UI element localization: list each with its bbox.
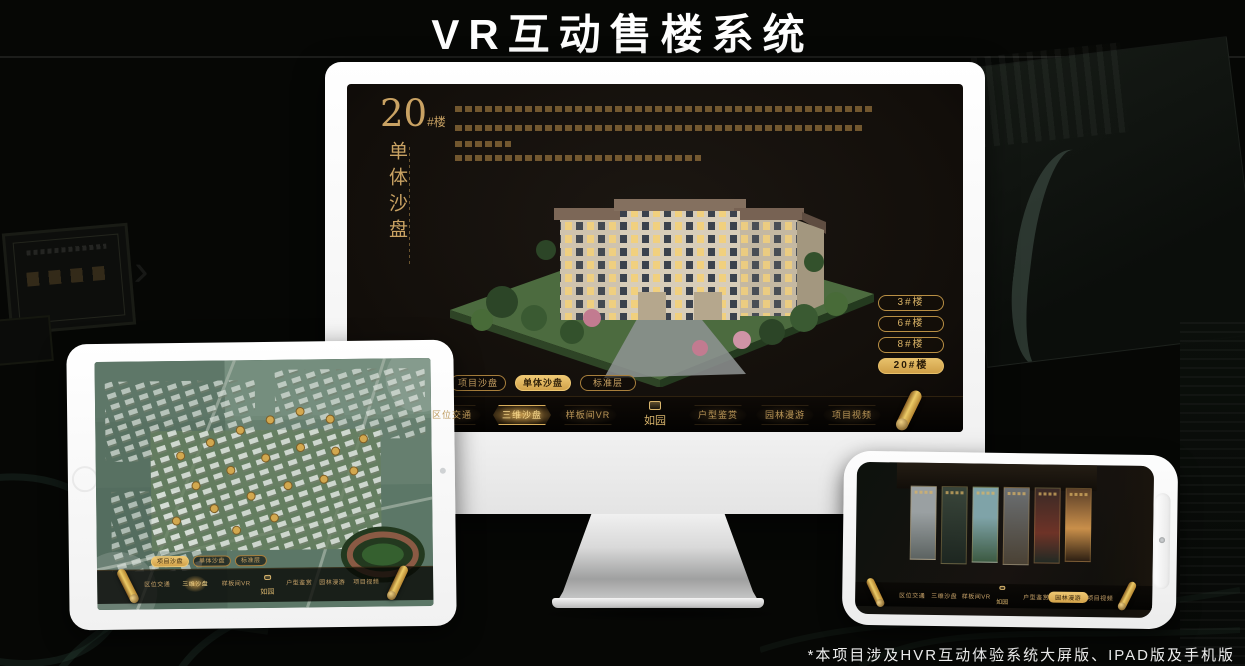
tablet-camera-icon	[440, 468, 446, 474]
seal-icon	[649, 401, 661, 410]
scroll-icon[interactable]	[894, 388, 923, 431]
unit-number: 20	[380, 92, 427, 135]
scene-panel[interactable]	[972, 486, 999, 562]
tablet-device: 项目沙盘 单体沙盘 标准层 区位交通 三维沙盘 样板间VR 如园 户型鉴赏 园林…	[66, 340, 456, 631]
floor-button-20[interactable]: 20#楼	[878, 358, 944, 374]
river-texture	[1003, 144, 1119, 367]
phone-screen: 区位交通 三维沙盘 样板间VR 如园 户型鉴赏 园林漫游 项目视频	[855, 462, 1154, 618]
subtab-standard-floor[interactable]: 标准层	[580, 375, 636, 391]
nav-showroom-vr[interactable]: 样板间VR	[956, 591, 996, 601]
logo-text: 如园	[644, 414, 666, 427]
scroll-icon[interactable]	[865, 577, 885, 608]
unit-suffix: #楼	[427, 115, 446, 129]
ruyuan-logo[interactable]: 如园	[257, 575, 277, 598]
monitor-stand	[557, 514, 759, 602]
floor-button-8[interactable]: 8#楼	[878, 337, 944, 353]
nav-project-video[interactable]: 项目视频	[820, 404, 884, 426]
tablet-camera-ring	[72, 466, 98, 492]
background-plaque-edge	[0, 315, 54, 367]
chevron-right-icon: ›	[133, 246, 150, 297]
subtab-standard-floor[interactable]: 标准层	[235, 555, 267, 566]
promo-poster: { "page": { "title": "VR互动售楼系统", "footno…	[0, 0, 1245, 666]
nav-project-video[interactable]: 项目视频	[344, 576, 388, 586]
unit-title: 20#楼 单体沙盘	[380, 92, 446, 271]
nav-project-video[interactable]: 项目视频	[1080, 593, 1120, 603]
scene-panel[interactable]	[910, 486, 937, 560]
scene-panel[interactable]	[941, 486, 968, 564]
subtab-single-sandbox[interactable]: 单体沙盘	[515, 375, 571, 391]
unit-subtitle-vertical: 单体沙盘	[384, 141, 411, 271]
scene-panel[interactable]	[1034, 487, 1061, 563]
sandbox-subtabs: 项目沙盘 单体沙盘 标准层	[450, 375, 636, 391]
nav-showroom-vr[interactable]: 样板间VR	[556, 404, 620, 426]
subtab-project-sandbox[interactable]: 项目沙盘	[151, 556, 189, 567]
phone-camera-icon	[1159, 537, 1165, 543]
page-title: VR互动售楼系统	[0, 1, 1245, 62]
phone-device: 区位交通 三维沙盘 样板间VR 如园 户型鉴赏 园林漫游 项目视频	[842, 451, 1178, 630]
nav-garden-roam[interactable]: 园林漫游	[753, 404, 817, 426]
logo-text: 如园	[996, 599, 1008, 606]
floor-button-3[interactable]: 3#楼	[878, 295, 944, 311]
seal-icon	[999, 586, 1005, 590]
nav-floorplan-gallery[interactable]: 户型鉴赏	[686, 404, 750, 426]
subtab-project-sandbox[interactable]: 项目沙盘	[450, 375, 506, 391]
scene-panel[interactable]	[1003, 487, 1030, 565]
scene-panel[interactable]	[1065, 488, 1092, 562]
floor-button-6[interactable]: 6#楼	[878, 316, 944, 332]
subtab-single-sandbox[interactable]: 单体沙盘	[193, 555, 231, 566]
tablet-subtabs: 项目沙盘 单体沙盘 标准层	[151, 555, 267, 567]
nav-3d-sandbox[interactable]: 三维沙盘	[490, 404, 554, 426]
monitor-shadow	[530, 606, 790, 622]
seal-icon	[264, 575, 271, 580]
phone-navbar: 区位交通 三维沙盘 样板间VR 如园 户型鉴赏 园林漫游 项目视频	[855, 582, 1152, 610]
logo-text: 如园	[260, 588, 274, 596]
nav-showroom-vr[interactable]: 样板间VR	[214, 578, 258, 588]
footnote-text: *本项目涉及HVR互动体验系统大屏版、IPAD版及手机版	[808, 644, 1235, 665]
ruyuan-logo[interactable]: 如园	[635, 401, 675, 428]
nav-3d-sandbox[interactable]: 三维沙盘	[173, 579, 217, 589]
description-text-line	[455, 106, 875, 112]
tablet-screen: 项目沙盘 单体沙盘 标准层 区位交通 三维沙盘 样板间VR 如园 户型鉴赏 园林…	[94, 358, 433, 610]
description-text-line	[455, 125, 863, 131]
building-model-illustration[interactable]	[442, 142, 882, 387]
unit-divider	[409, 146, 410, 264]
ruyuan-logo[interactable]: 如园	[993, 586, 1011, 608]
